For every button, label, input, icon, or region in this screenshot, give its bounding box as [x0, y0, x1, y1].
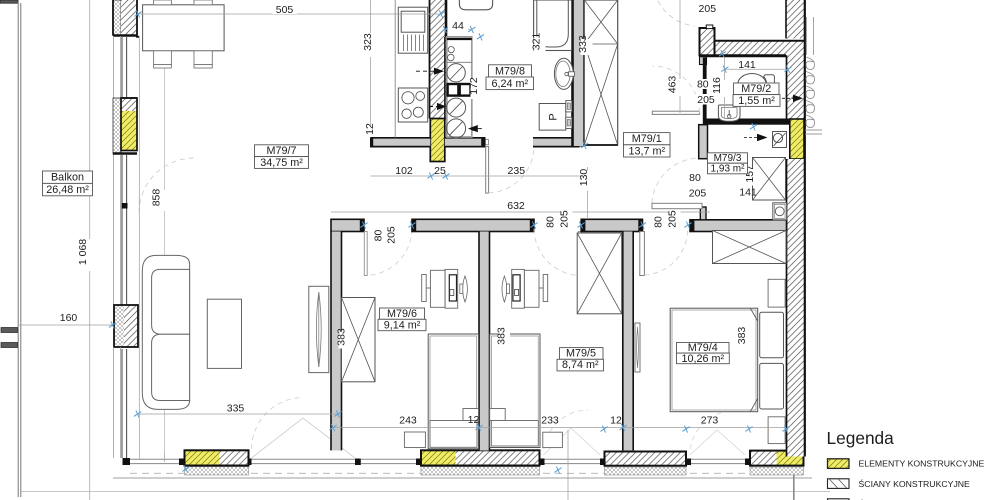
svg-text:44: 44	[452, 20, 464, 32]
svg-text:205: 205	[558, 210, 570, 228]
svg-text:10,26 m²: 10,26 m²	[681, 353, 724, 365]
svg-text:632: 632	[507, 200, 525, 212]
svg-text:M79/5: M79/5	[566, 348, 596, 360]
svg-text:M79/8: M79/8	[495, 65, 525, 77]
svg-text:1,93 m²: 1,93 m²	[711, 164, 746, 175]
svg-text:116: 116	[711, 77, 723, 94]
svg-text:ŚCIANY KONSTRUKCYJNE: ŚCIANY KONSTRUKCYJNE	[859, 478, 971, 489]
svg-text:321: 321	[530, 33, 542, 51]
svg-text:M79/3: M79/3	[714, 153, 742, 164]
svg-text:333: 333	[577, 35, 589, 53]
svg-text:80: 80	[689, 172, 701, 184]
svg-text:P: P	[548, 113, 560, 120]
svg-text:205: 205	[666, 210, 678, 228]
svg-text:383: 383	[495, 327, 507, 345]
svg-text:80: 80	[652, 216, 664, 228]
svg-text:1,55 m²: 1,55 m²	[738, 95, 775, 107]
svg-text:205: 205	[699, 3, 717, 15]
svg-text:Legenda: Legenda	[827, 428, 895, 448]
svg-text:34,75 m²: 34,75 m²	[260, 157, 303, 169]
svg-text:102: 102	[395, 165, 413, 177]
svg-text:1 068: 1 068	[77, 239, 89, 265]
svg-text:505: 505	[276, 4, 294, 16]
svg-text:80: 80	[372, 230, 384, 242]
svg-text:80: 80	[544, 216, 556, 228]
svg-text:6,24 m²: 6,24 m²	[491, 78, 528, 90]
svg-text:Balkon: Balkon	[51, 172, 84, 184]
svg-text:26,48 m²: 26,48 m²	[46, 184, 89, 196]
svg-text:160: 160	[60, 312, 78, 324]
svg-text:383: 383	[736, 327, 748, 345]
svg-text:141: 141	[739, 187, 757, 199]
svg-text:335: 335	[227, 403, 245, 415]
svg-text:858: 858	[151, 189, 163, 207]
svg-text:205: 205	[385, 226, 397, 244]
svg-text:130: 130	[578, 169, 590, 187]
svg-text:M79/7: M79/7	[266, 145, 296, 157]
svg-text:243: 243	[399, 414, 417, 426]
svg-text:12: 12	[364, 123, 376, 135]
svg-text:235: 235	[508, 165, 526, 177]
svg-text:205: 205	[689, 187, 707, 199]
svg-text:ELEMENTY KONSTRUKCYJNE: ELEMENTY KONSTRUKCYJNE	[859, 459, 985, 469]
svg-text:141: 141	[738, 59, 756, 71]
svg-text:273: 273	[701, 414, 719, 426]
svg-text:M79/1: M79/1	[632, 133, 662, 145]
svg-text:25: 25	[434, 165, 446, 177]
svg-text:80: 80	[697, 79, 709, 91]
svg-text:M79/2: M79/2	[741, 83, 771, 95]
svg-text:323: 323	[362, 33, 374, 51]
svg-text:463: 463	[666, 76, 678, 94]
svg-text:9,14 m²: 9,14 m²	[384, 319, 421, 331]
svg-text:233: 233	[541, 414, 559, 426]
svg-text:M79/6: M79/6	[387, 308, 417, 320]
svg-text:172: 172	[468, 77, 480, 95]
svg-text:383: 383	[336, 328, 348, 346]
svg-text:13,7 m²: 13,7 m²	[628, 145, 665, 157]
svg-text:205: 205	[697, 94, 715, 106]
svg-text:12: 12	[610, 414, 622, 426]
svg-text:8,74 m²: 8,74 m²	[562, 359, 599, 371]
svg-text:12: 12	[468, 414, 480, 426]
